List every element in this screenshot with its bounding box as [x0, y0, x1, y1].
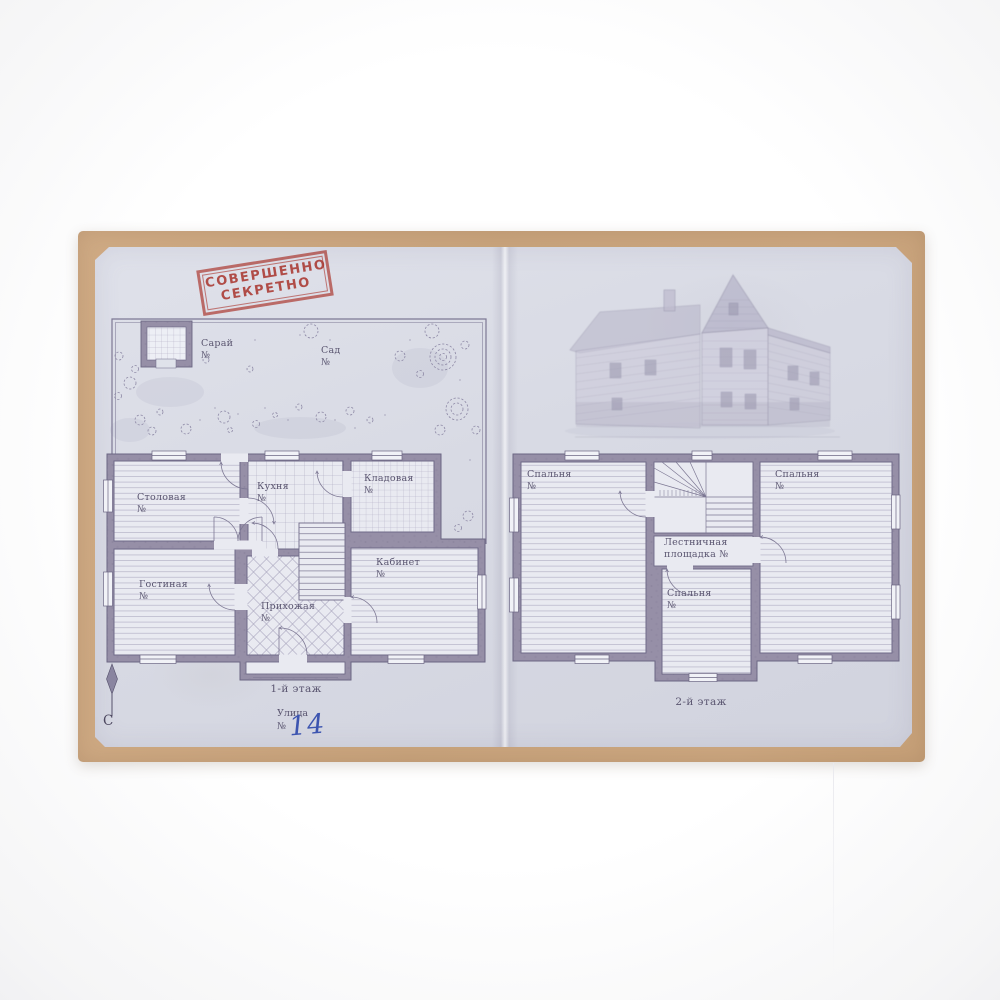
shed — [141, 321, 192, 368]
north-arrow-icon — [107, 664, 118, 716]
house-sketch — [565, 275, 840, 439]
kitchen-label: Кухня№ — [257, 481, 289, 506]
table-edge-shadow — [833, 763, 834, 973]
handwritten-house-number: 14 — [288, 708, 327, 742]
photographed-secret-floorplan-document: СОВЕРШЕННО СЕКРЕТНО Сарай № Сад № Столов… — [0, 0, 1000, 1000]
floor1-plan — [104, 451, 487, 680]
porch — [246, 662, 345, 674]
bedroom-middle-label: Спальня№ — [667, 588, 712, 613]
pantry-label: Кладовая№ — [364, 473, 414, 498]
living-room-label: Гостиная№ — [139, 579, 188, 604]
floor2-caption: 2-й этаж — [675, 696, 726, 708]
stairwell — [654, 462, 753, 533]
floor1-caption: 1-й этаж — [270, 683, 321, 695]
staircase-floor1 — [299, 523, 345, 600]
bedroom-left-label: Спальня№ — [527, 469, 572, 494]
compass-north-label: С — [103, 713, 113, 729]
shed-label: Сарай № — [201, 338, 233, 363]
sketch-and-floor2-plan — [505, 250, 912, 745]
dining-room-label: Столовая№ — [137, 492, 186, 517]
study-label: Кабинет№ — [376, 557, 420, 582]
garden-label: Сад № — [321, 345, 341, 370]
bedroom-right-label: Спальня№ — [775, 469, 820, 494]
stair-landing-label: Лестничнаяплощадка № — [664, 537, 729, 562]
hallway-label: Прихожая№ — [261, 601, 315, 626]
